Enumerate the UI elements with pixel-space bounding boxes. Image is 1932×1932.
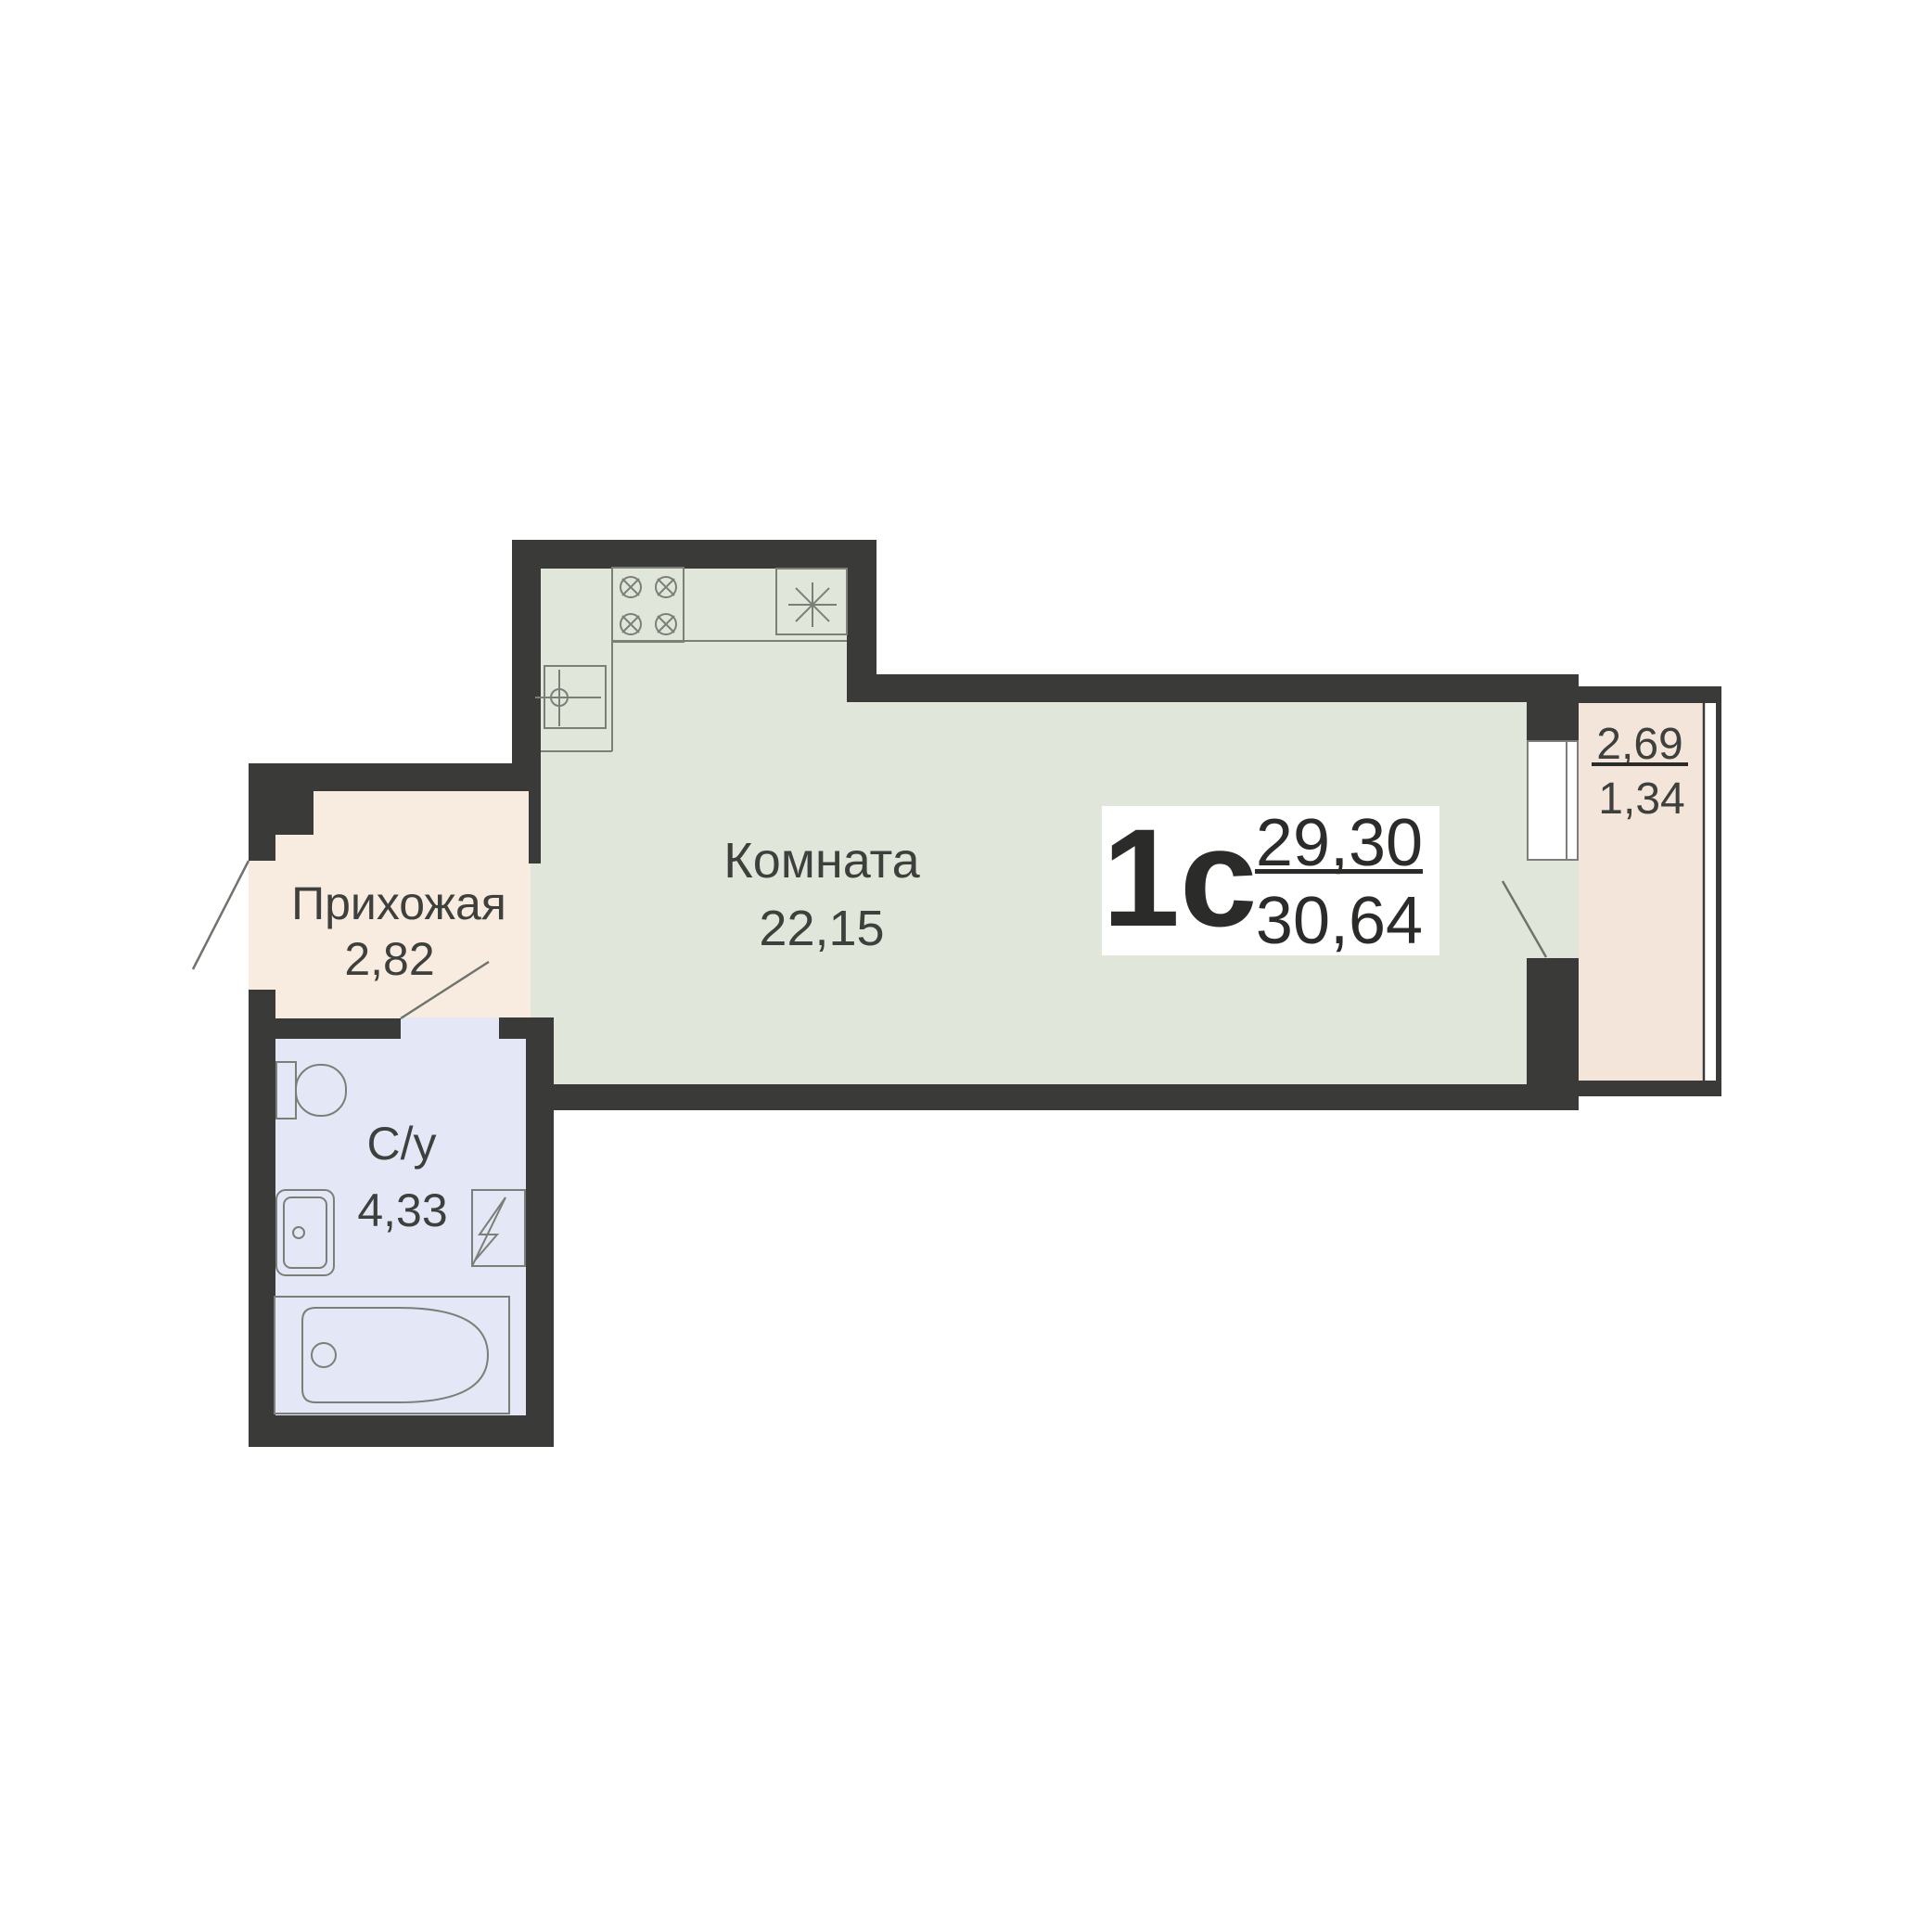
living-room-area: 22,15	[759, 901, 884, 956]
unit-type-card: 1с 29,30 30,64	[1102, 800, 1439, 958]
wall-segment	[249, 763, 541, 791]
unit-area-lower: 30,64	[1256, 884, 1423, 958]
balcony-area-full: 2,69	[1596, 720, 1683, 769]
wall-segment	[275, 1018, 401, 1039]
unit-area-divider	[1255, 869, 1423, 874]
wall-segment	[554, 1084, 1579, 1110]
entry-door-swing	[193, 861, 249, 969]
wall-segment	[529, 791, 541, 864]
living-room-label: Комната	[723, 833, 920, 889]
balcony-outer-rail	[1716, 686, 1721, 1096]
balcony-area-divider	[1592, 762, 1688, 766]
wall-segment	[249, 990, 275, 1447]
wall-segment	[526, 1017, 554, 1447]
balcony-top-wall	[1579, 686, 1721, 703]
wall-segment	[275, 791, 313, 835]
wall-segment	[512, 540, 876, 569]
balcony-area-half: 1,34	[1598, 774, 1684, 824]
wall-segment	[249, 1415, 554, 1447]
floor-plan: Комната 22,15 Прихожая 2,82 С/у 4,33 2,6…	[0, 0, 1932, 1932]
wall-segment	[847, 674, 1579, 702]
balcony-window	[1527, 740, 1579, 861]
wall-segment	[249, 763, 275, 861]
hallway-area: 2,82	[344, 933, 434, 985]
wall-segment	[1527, 674, 1579, 740]
unit-type-label: 1с	[1103, 800, 1258, 955]
bathroom-area: 4,33	[357, 1184, 447, 1236]
balcony-bottom-wall	[1579, 1081, 1721, 1096]
bathroom-door-gap-floor	[401, 1017, 499, 1045]
wall-segment	[512, 540, 541, 763]
hallway-label: Прихожая	[291, 877, 506, 929]
bathroom-label: С/у	[367, 1118, 437, 1170]
